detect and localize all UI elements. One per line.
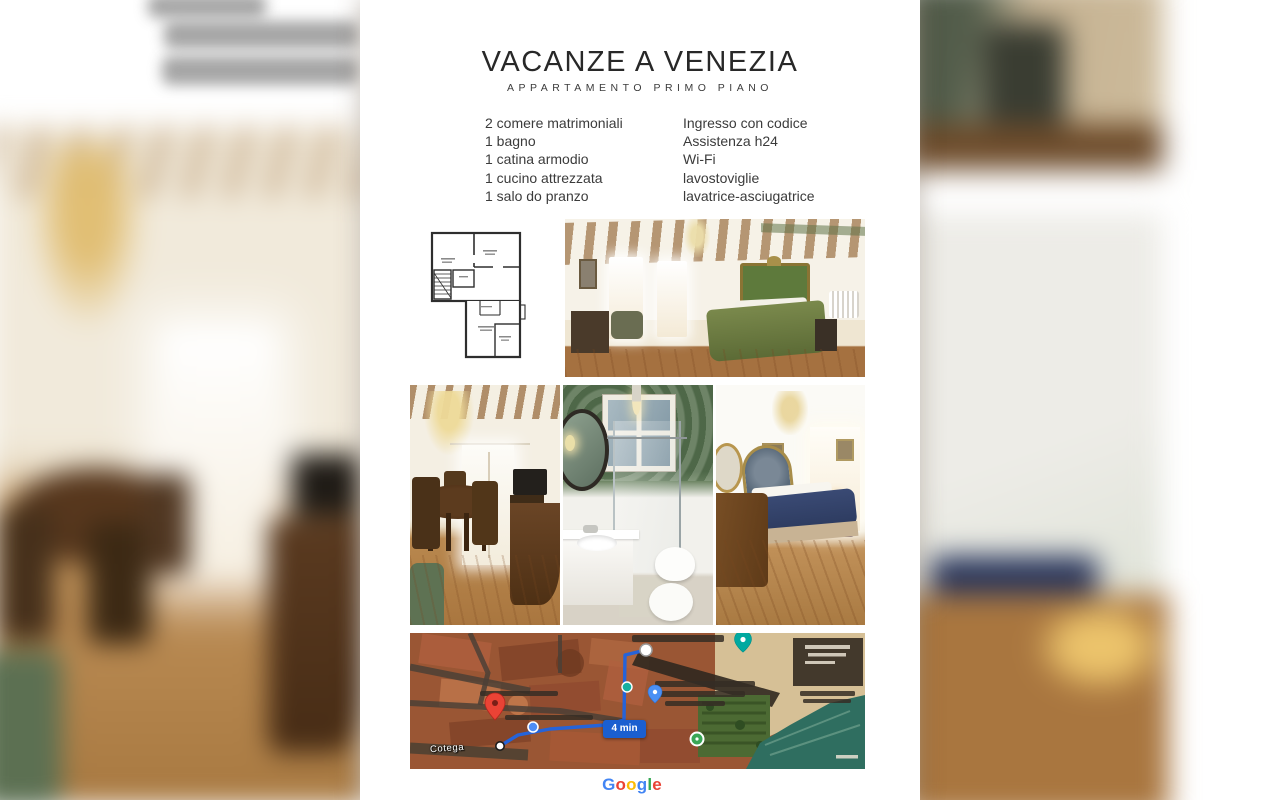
floor-plan-image bbox=[423, 221, 537, 374]
blurred-chair bbox=[88, 522, 150, 644]
background-right-blurred-photo bbox=[920, 0, 1280, 800]
pendant-light-shape bbox=[632, 385, 641, 415]
wall-sconce-shape bbox=[565, 435, 575, 451]
feature-item: 1 catina armodio bbox=[485, 150, 623, 168]
blurred-chair bbox=[144, 474, 190, 574]
background-left-blur-layer bbox=[0, 0, 362, 800]
route-start-dot-icon bbox=[496, 742, 504, 750]
console-desk-shape bbox=[510, 503, 560, 605]
route-end-dot-icon bbox=[640, 644, 652, 656]
feature-item: Wi-Fi bbox=[683, 150, 815, 168]
wall-art-shape bbox=[836, 439, 854, 461]
flyer-page: VACANZE A VENEZIA APPARTAMENTO PRIMO PIA… bbox=[360, 0, 920, 800]
blurred-text-line bbox=[162, 56, 358, 85]
feature-item: 1 bagno bbox=[485, 132, 623, 150]
google-logo-letter: e bbox=[652, 775, 662, 794]
blurred-console-desk bbox=[268, 518, 362, 753]
chair-shape bbox=[472, 481, 498, 545]
ceiling-frieze-shape bbox=[761, 223, 865, 236]
bidet-shape bbox=[649, 583, 693, 621]
toilet-shape bbox=[655, 547, 695, 581]
feature-item: 1 salo do pranzo bbox=[485, 187, 623, 205]
photo-bedroom-blue bbox=[716, 385, 865, 625]
background-left-blurred-photo bbox=[0, 0, 362, 800]
google-logo: Google bbox=[352, 775, 912, 795]
background-right-blur-layer bbox=[920, 0, 1280, 800]
radiator-shape bbox=[829, 291, 859, 318]
sink-shape bbox=[577, 535, 617, 551]
feature-list-right: Ingresso con codice Assistenza h24 Wi-Fi… bbox=[683, 114, 815, 205]
blurred-bedroom-wall-crop bbox=[920, 214, 1162, 592]
feature-item: 1 cucino attrezzata bbox=[485, 169, 623, 187]
feature-item: Ingresso con codice bbox=[683, 114, 815, 132]
green-armchair-shape bbox=[410, 563, 444, 625]
wall-art-shape bbox=[579, 259, 597, 289]
blurred-text-line bbox=[148, 0, 266, 18]
map-graphics bbox=[410, 633, 865, 769]
blurred-dining-photo bbox=[0, 126, 362, 800]
blurred-chandelier bbox=[30, 144, 145, 329]
chair-shape bbox=[412, 477, 440, 549]
blurred-bedroom-top-crop bbox=[920, 0, 1163, 170]
faucet-shape bbox=[583, 525, 598, 533]
blue-dot-icon bbox=[528, 722, 538, 732]
feature-list-left: 2 comere matrimoniali 1 bagno 1 catina a… bbox=[485, 114, 623, 205]
photo-dining-room bbox=[410, 385, 560, 625]
blurred-tv bbox=[292, 454, 360, 516]
page-canvas: VACANZE A VENEZIA APPARTAMENTO PRIMO PIA… bbox=[0, 0, 1280, 800]
side-table-shape bbox=[815, 319, 837, 351]
page-title: VACANZE A VENEZIA bbox=[360, 46, 920, 79]
feature-item: 2 comere matrimoniali bbox=[485, 114, 623, 132]
photo-bedroom-green bbox=[565, 219, 865, 377]
blurred-text-line bbox=[164, 21, 358, 49]
dresser-shape bbox=[716, 493, 768, 587]
google-logo-letter: g bbox=[637, 775, 648, 794]
floor-plan-drawing bbox=[423, 221, 537, 374]
window-shape bbox=[657, 261, 687, 337]
map-image: 4 min Cotega bbox=[410, 633, 865, 769]
tv-shape bbox=[513, 469, 547, 495]
green-bed-shape bbox=[706, 300, 828, 362]
armchair-shape bbox=[611, 311, 643, 339]
feature-item: lavostoviglie bbox=[683, 169, 815, 187]
google-logo-letter: o bbox=[626, 775, 637, 794]
green-circle-icon bbox=[691, 733, 704, 746]
feature-item: lavatrice-asciugatrice bbox=[683, 187, 815, 205]
google-logo-letter: o bbox=[616, 775, 627, 794]
gold-mirror-shape bbox=[716, 443, 743, 493]
photo-bathroom bbox=[563, 385, 713, 625]
page-subtitle: APPARTAMENTO PRIMO PIANO bbox=[360, 82, 920, 94]
blurred-chair bbox=[0, 508, 54, 640]
blurred-wood-floor bbox=[920, 594, 1169, 800]
walk-time-badge: 4 min bbox=[603, 720, 646, 738]
google-logo-letter: G bbox=[602, 775, 615, 794]
chandelier-shape bbox=[772, 391, 808, 435]
feature-item: Assistenza h24 bbox=[683, 132, 815, 150]
chandelier-shape bbox=[684, 219, 710, 257]
blurred-green-armchair bbox=[0, 650, 62, 800]
desk-shape bbox=[571, 311, 609, 353]
teal-dot-icon bbox=[622, 682, 632, 692]
